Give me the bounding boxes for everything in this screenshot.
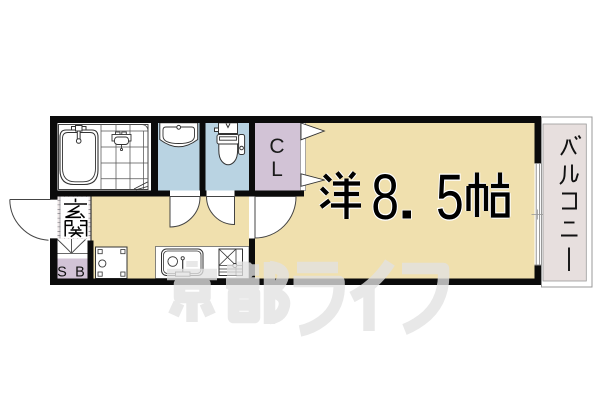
svg-text:8: 8: [371, 162, 399, 233]
svg-text:S: S: [57, 265, 67, 281]
svg-text:5: 5: [436, 162, 464, 233]
svg-text:C: C: [269, 135, 284, 158]
svg-text:L: L: [271, 158, 283, 181]
svg-text:B: B: [75, 265, 85, 281]
